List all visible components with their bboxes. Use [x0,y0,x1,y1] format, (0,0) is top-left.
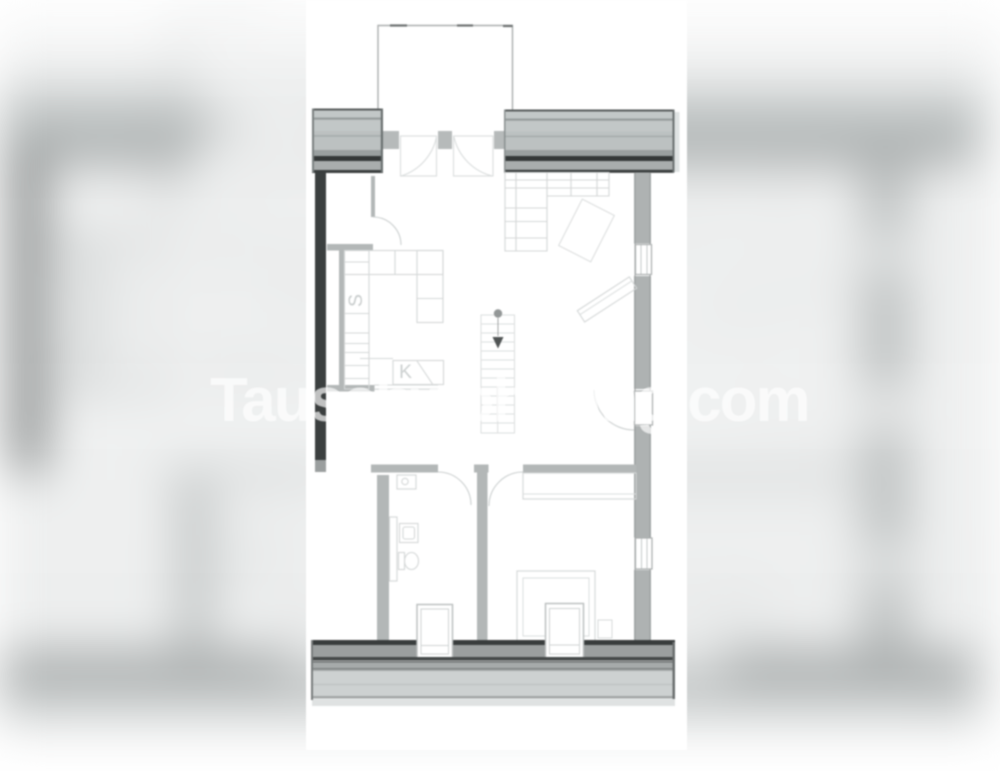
svg-text:S: S [345,294,367,307]
